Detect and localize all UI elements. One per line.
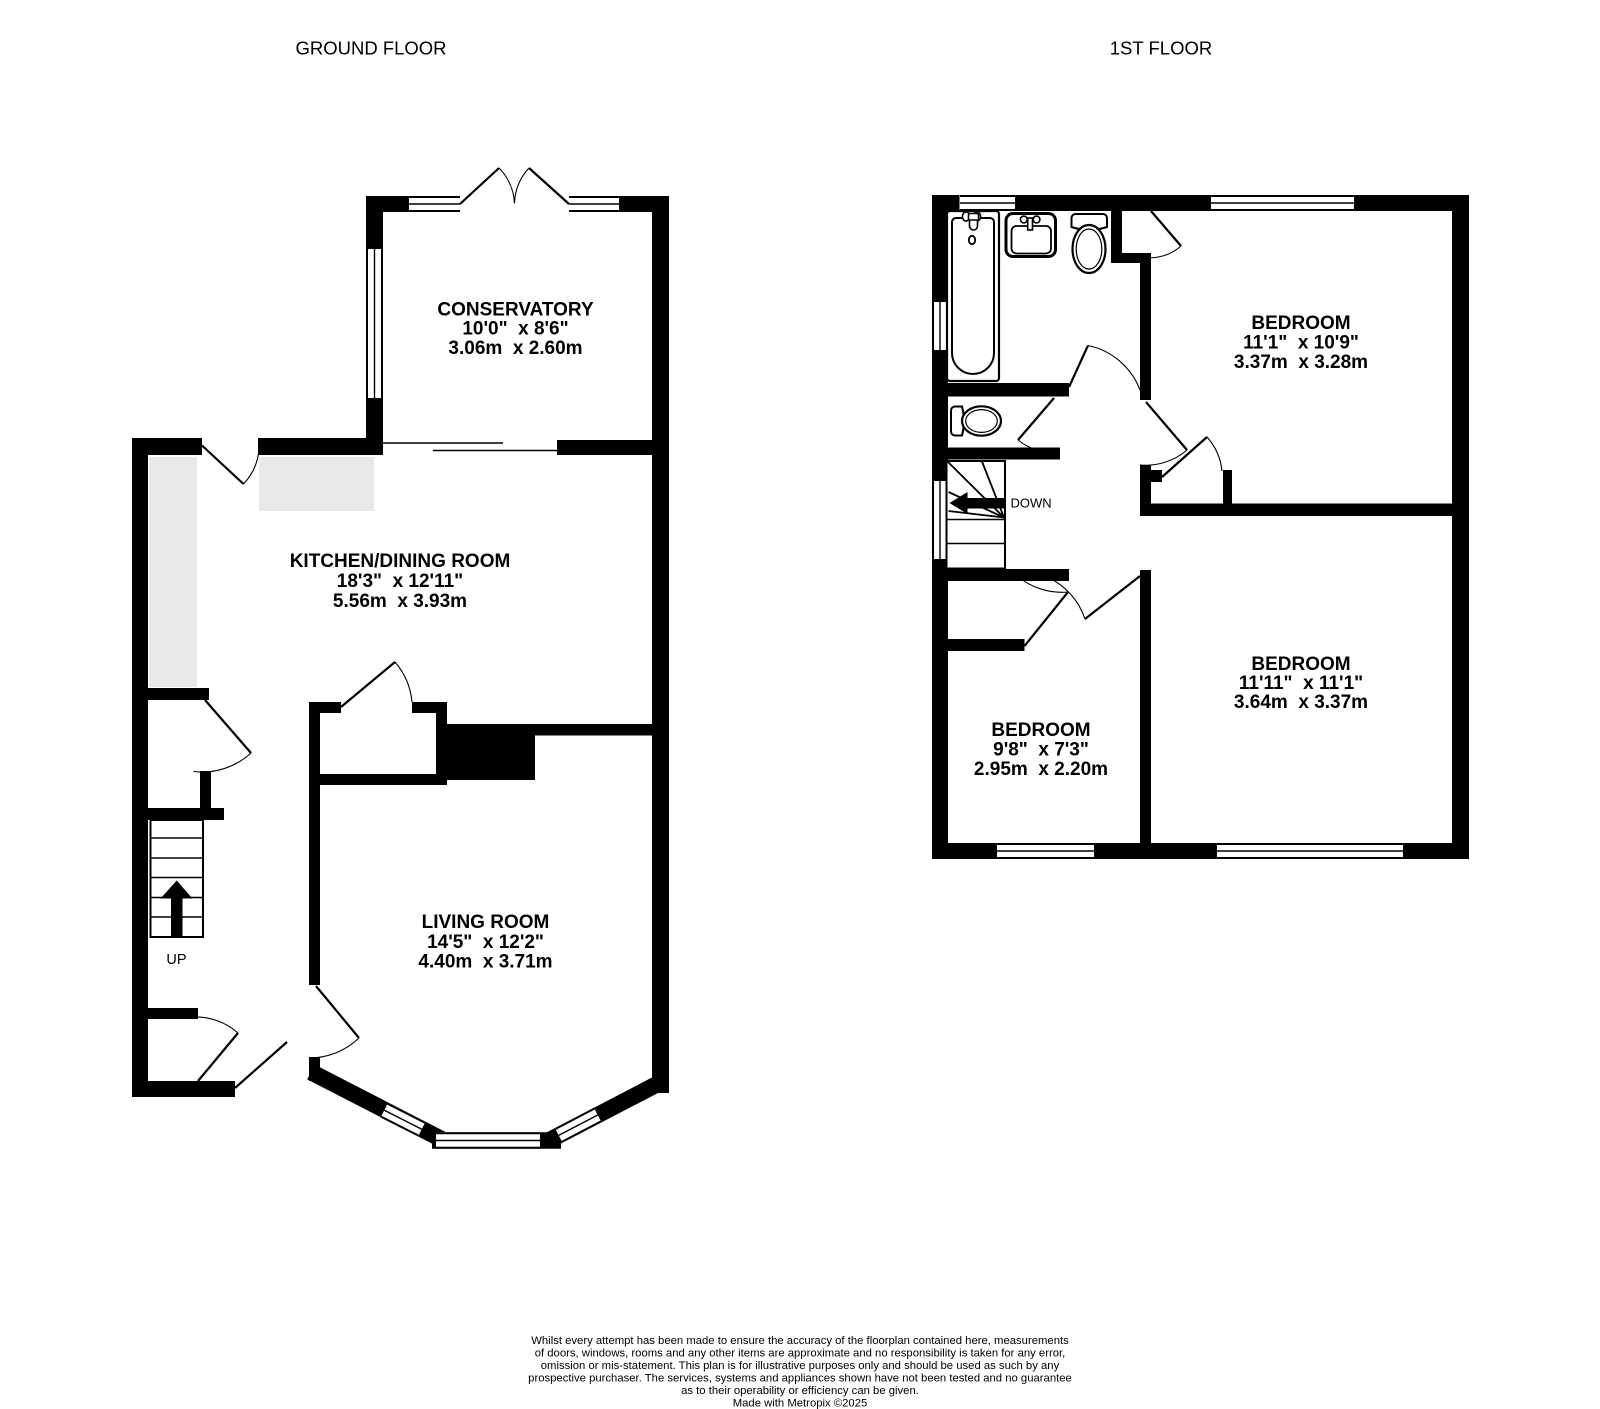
svg-text:11'11" x 11'1": 11'11" x 11'1" xyxy=(1239,673,1363,694)
svg-text:14'5" x 12'2": 14'5" x 12'2" xyxy=(427,932,544,953)
svg-text:11'1" x 10'9": 11'1" x 10'9" xyxy=(1243,333,1359,354)
svg-text:9'8" x 7'3": 9'8" x 7'3" xyxy=(993,740,1089,761)
svg-text:BEDROOM: BEDROOM xyxy=(1251,654,1350,675)
svg-text:1ST FLOOR: 1ST FLOOR xyxy=(1110,38,1212,59)
svg-text:Whilst every attempt has been: Whilst every attempt has been made to en… xyxy=(531,1335,1069,1347)
svg-text:3.37m x 3.28m: 3.37m x 3.28m xyxy=(1234,352,1368,373)
svg-text:18'3" x 12'11": 18'3" x 12'11" xyxy=(337,571,463,592)
svg-text:4.40m x 3.71m: 4.40m x 3.71m xyxy=(418,952,552,973)
svg-text:as to their operability or eff: as to their operability or efficiency ca… xyxy=(681,1385,919,1397)
svg-text:GROUND FLOOR: GROUND FLOOR xyxy=(295,38,446,59)
svg-text:5.56m x 3.93m: 5.56m x 3.93m xyxy=(333,591,467,612)
svg-text:CONSERVATORY: CONSERVATORY xyxy=(437,300,594,321)
svg-text:Made with Metropix ©2025: Made with Metropix ©2025 xyxy=(733,1398,868,1409)
svg-text:3.06m x 2.60m: 3.06m x 2.60m xyxy=(448,338,582,359)
svg-text:3.64m x 3.37m: 3.64m x 3.37m xyxy=(1234,692,1368,713)
svg-text:UP: UP xyxy=(166,952,186,968)
svg-text:DOWN: DOWN xyxy=(1011,496,1052,511)
svg-text:LIVING ROOM: LIVING ROOM xyxy=(422,912,550,933)
svg-text:BEDROOM: BEDROOM xyxy=(991,720,1090,741)
svg-text:KITCHEN/DINING ROOM: KITCHEN/DINING ROOM xyxy=(290,551,511,572)
svg-text:of doors, windows, rooms and a: of doors, windows, rooms and any other i… xyxy=(535,1348,1066,1360)
svg-text:prospective purchaser. The ser: prospective purchaser. The services, sys… xyxy=(528,1373,1072,1385)
svg-text:omission or mis-statement. Thi: omission or mis-statement. This plan is … xyxy=(541,1360,1060,1372)
svg-text:BEDROOM: BEDROOM xyxy=(1251,313,1350,334)
svg-text:10'0" x 8'6": 10'0" x 8'6" xyxy=(462,319,568,340)
svg-text:2.95m x 2.20m: 2.95m x 2.20m xyxy=(974,759,1108,780)
